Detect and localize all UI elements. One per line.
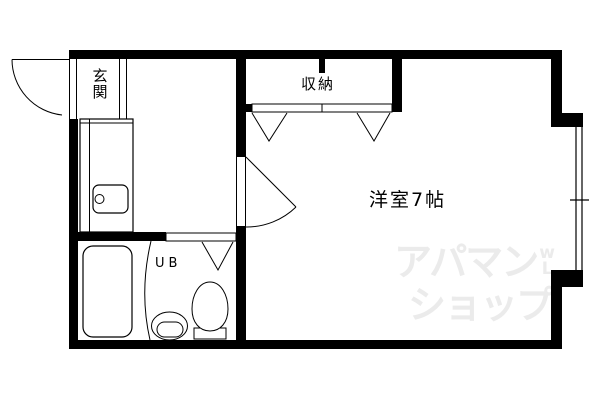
wall-right-upper [551, 59, 562, 113]
wall-right-step-bottom [551, 270, 583, 287]
bath-door-fold [202, 242, 233, 270]
floorplan: アパマン w L ショップ [0, 0, 600, 400]
bath-door-track [166, 233, 236, 241]
entrance-label: 玄関 [91, 68, 108, 100]
entrance-door-swing-arc [12, 60, 62, 116]
closet-door-fold-right [357, 113, 390, 141]
bath-partition-curve [145, 241, 151, 340]
toilet-bowl [192, 282, 228, 331]
wall-interior-upper [236, 59, 246, 157]
closet-label: 収納 [301, 73, 335, 94]
wall-closet-pillar [392, 59, 402, 112]
kitchen-counter [80, 119, 133, 232]
faucet-icon [95, 195, 104, 204]
washbasin-bowl [157, 322, 183, 337]
genkan-partition [120, 59, 127, 119]
wall-bottom [69, 340, 562, 349]
walls [69, 50, 583, 349]
western-room-label: 洋室7帖 [369, 185, 446, 212]
bathtub [83, 246, 132, 337]
entrance-swing-door [12, 59, 77, 119]
wall-interior-lower [236, 226, 246, 340]
wall-top [69, 50, 562, 59]
wall-closet-left-cap [246, 104, 252, 112]
unit-bath-label: UB [155, 256, 181, 271]
room-door-swing-arc [246, 207, 296, 227]
floorplan-drawing [0, 0, 600, 400]
wall-bath-top [69, 232, 166, 241]
wall-right-lower [551, 287, 562, 340]
room-door-panel [246, 157, 296, 207]
wall-right-step-top [551, 113, 583, 127]
kitchen-counter-outline [80, 119, 133, 232]
closet-folding-doors [252, 104, 392, 141]
room-swing-door [237, 157, 297, 227]
closet-door-fold-left [252, 113, 287, 141]
window [570, 127, 589, 270]
wall-closet-divider-stub [319, 59, 325, 73]
